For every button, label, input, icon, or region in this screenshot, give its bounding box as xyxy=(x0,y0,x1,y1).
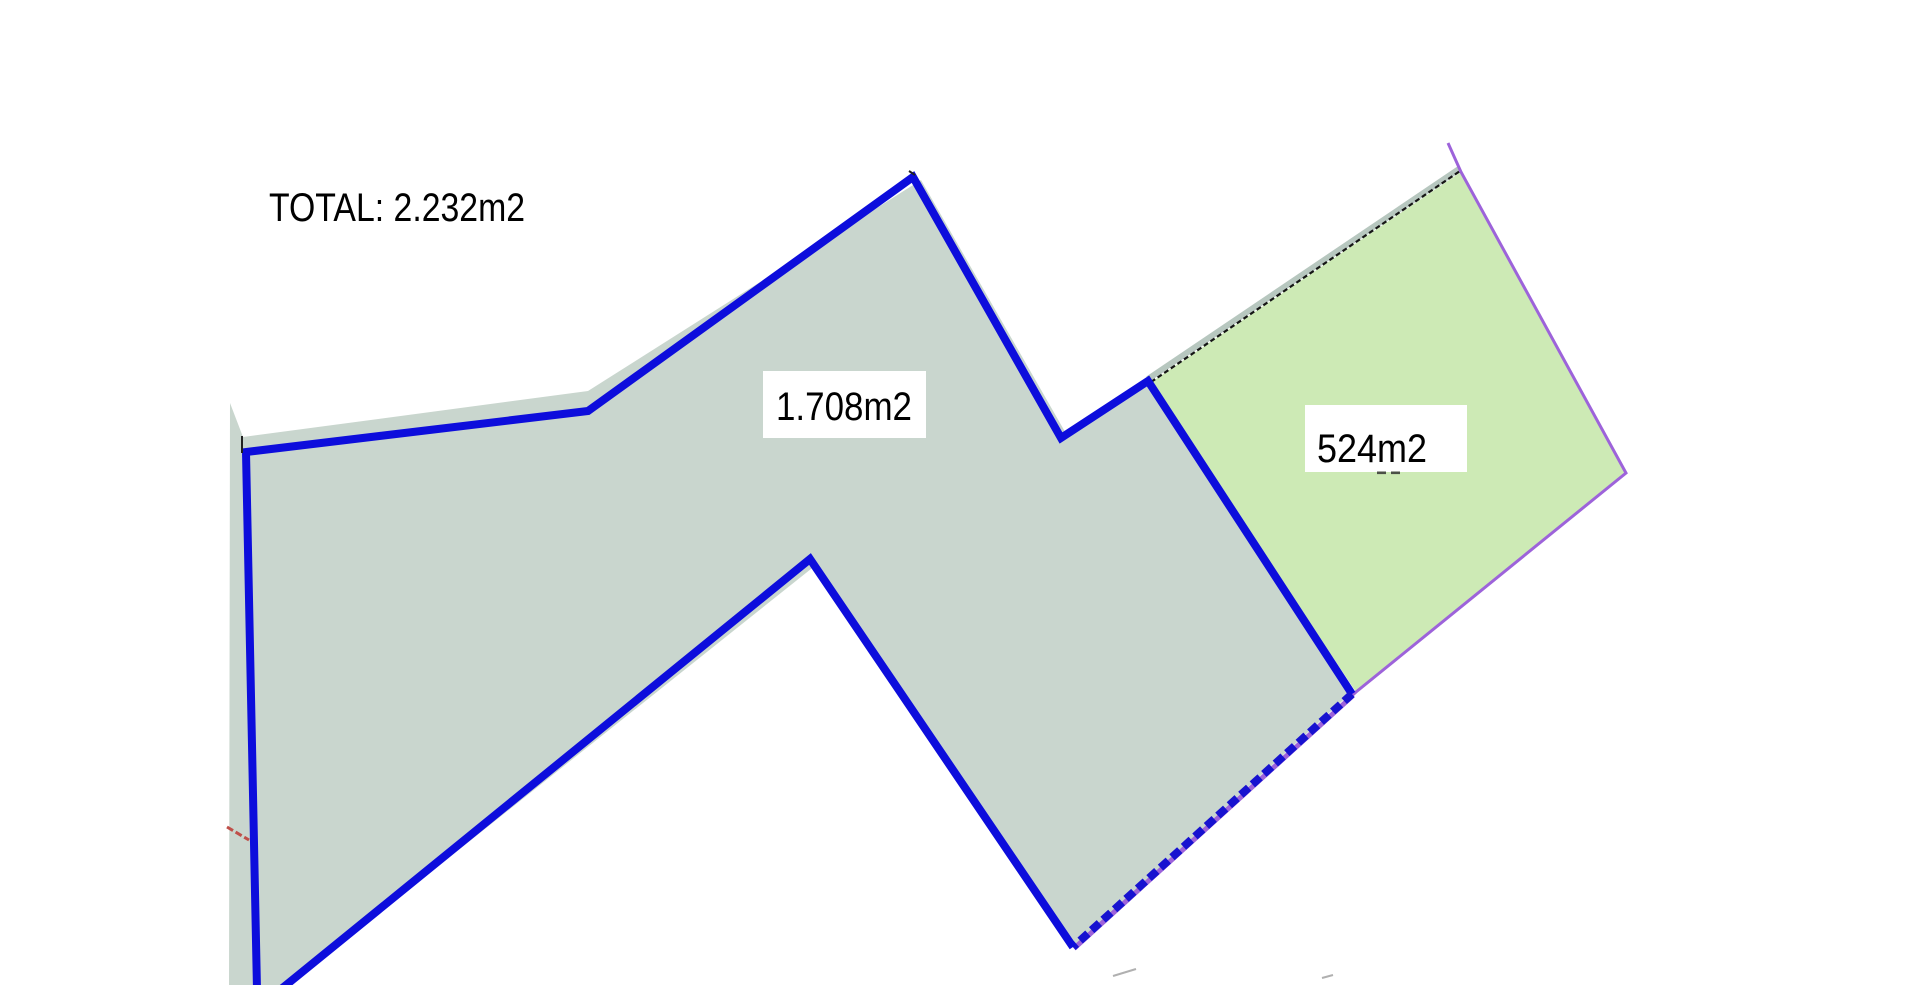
svg-text:1.708m2: 1.708m2 xyxy=(776,385,912,429)
svg-text:TOTAL: 2.232m2: TOTAL: 2.232m2 xyxy=(269,186,525,230)
svg-text:524m2: 524m2 xyxy=(1317,427,1427,471)
